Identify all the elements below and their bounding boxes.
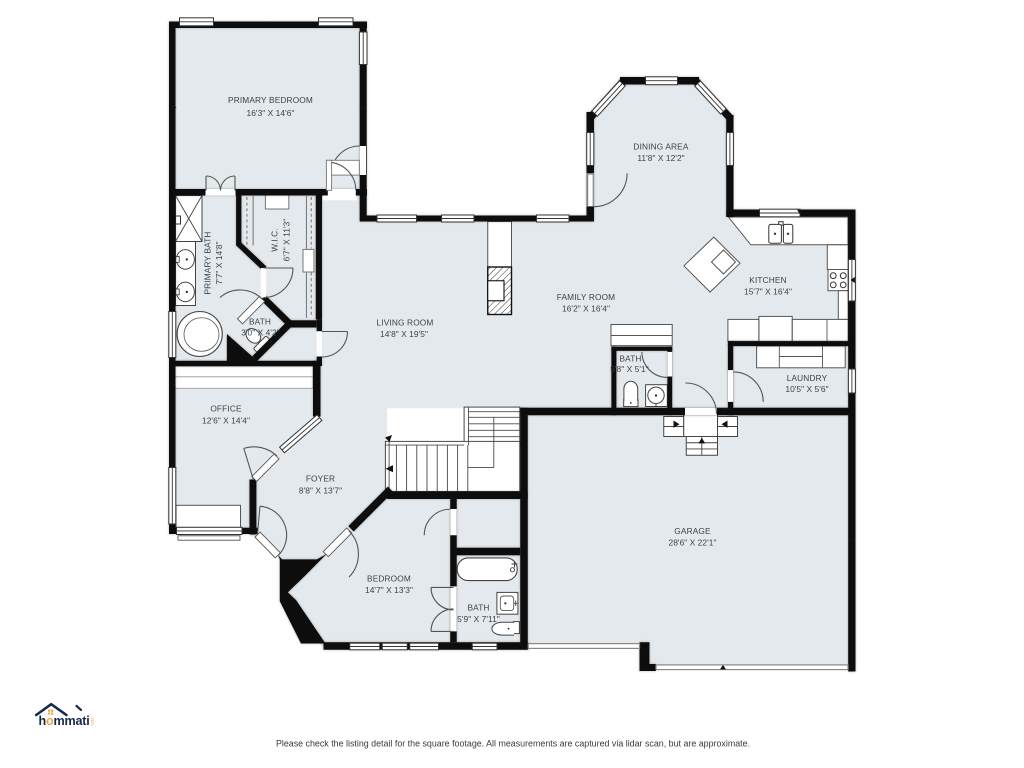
svg-text:14'8" X 19'5": 14'8" X 19'5" <box>380 329 428 339</box>
svg-text:.com: .com <box>90 717 95 727</box>
svg-text:12'6" X 14'4": 12'6" X 14'4" <box>202 416 250 426</box>
svg-text:hommati: hommati <box>39 714 90 728</box>
svg-text:28'6" X 22'1": 28'6" X 22'1" <box>669 538 717 548</box>
svg-text:7'7" X 14'8": 7'7" X 14'8" <box>214 241 224 284</box>
svg-text:W.I.C.: W.I.C. <box>270 228 280 252</box>
svg-text:6'7" X 11'3": 6'7" X 11'3" <box>282 219 292 262</box>
svg-text:GARAGE: GARAGE <box>674 526 711 536</box>
svg-text:5'8" X 5'1": 5'8" X 5'1" <box>610 364 649 374</box>
svg-text:KITCHEN: KITCHEN <box>749 275 786 285</box>
svg-text:BATH: BATH <box>619 354 641 364</box>
svg-text:BATH: BATH <box>249 317 271 327</box>
svg-text:FAMILY ROOM: FAMILY ROOM <box>557 292 616 302</box>
svg-text:15'7" X 16'4": 15'7" X 16'4" <box>744 287 792 297</box>
svg-text:PRIMARY BEDROOM: PRIMARY BEDROOM <box>228 95 313 105</box>
svg-text:DINING AREA: DINING AREA <box>633 142 688 152</box>
svg-text:LAUNDRY: LAUNDRY <box>787 373 828 383</box>
svg-text:10'5" X 5'6": 10'5" X 5'6" <box>785 384 828 394</box>
svg-text:8'8" X 13'7": 8'8" X 13'7" <box>299 486 342 496</box>
svg-text:3'0" X 4'2": 3'0" X 4'2" <box>241 328 280 338</box>
svg-text:Please check the listing detai: Please check the listing detail for the … <box>276 739 750 749</box>
svg-text:5'9" X 7'11": 5'9" X 7'11" <box>457 614 500 624</box>
svg-text:BATH: BATH <box>467 603 489 613</box>
svg-text:16'2" X 16'4": 16'2" X 16'4" <box>562 304 610 314</box>
svg-text:14'7" X 13'3": 14'7" X 13'3" <box>365 585 413 595</box>
svg-text:BEDROOM: BEDROOM <box>367 574 411 584</box>
svg-text:11'8" X 12'2": 11'8" X 12'2" <box>637 153 684 163</box>
svg-text:LIVING ROOM: LIVING ROOM <box>377 318 434 328</box>
svg-text:FOYER: FOYER <box>306 474 335 484</box>
svg-text:OFFICE: OFFICE <box>210 404 242 414</box>
svg-text:16'3" X 14'6": 16'3" X 14'6" <box>247 108 295 118</box>
svg-text:PRIMARY BATH: PRIMARY BATH <box>203 231 213 294</box>
